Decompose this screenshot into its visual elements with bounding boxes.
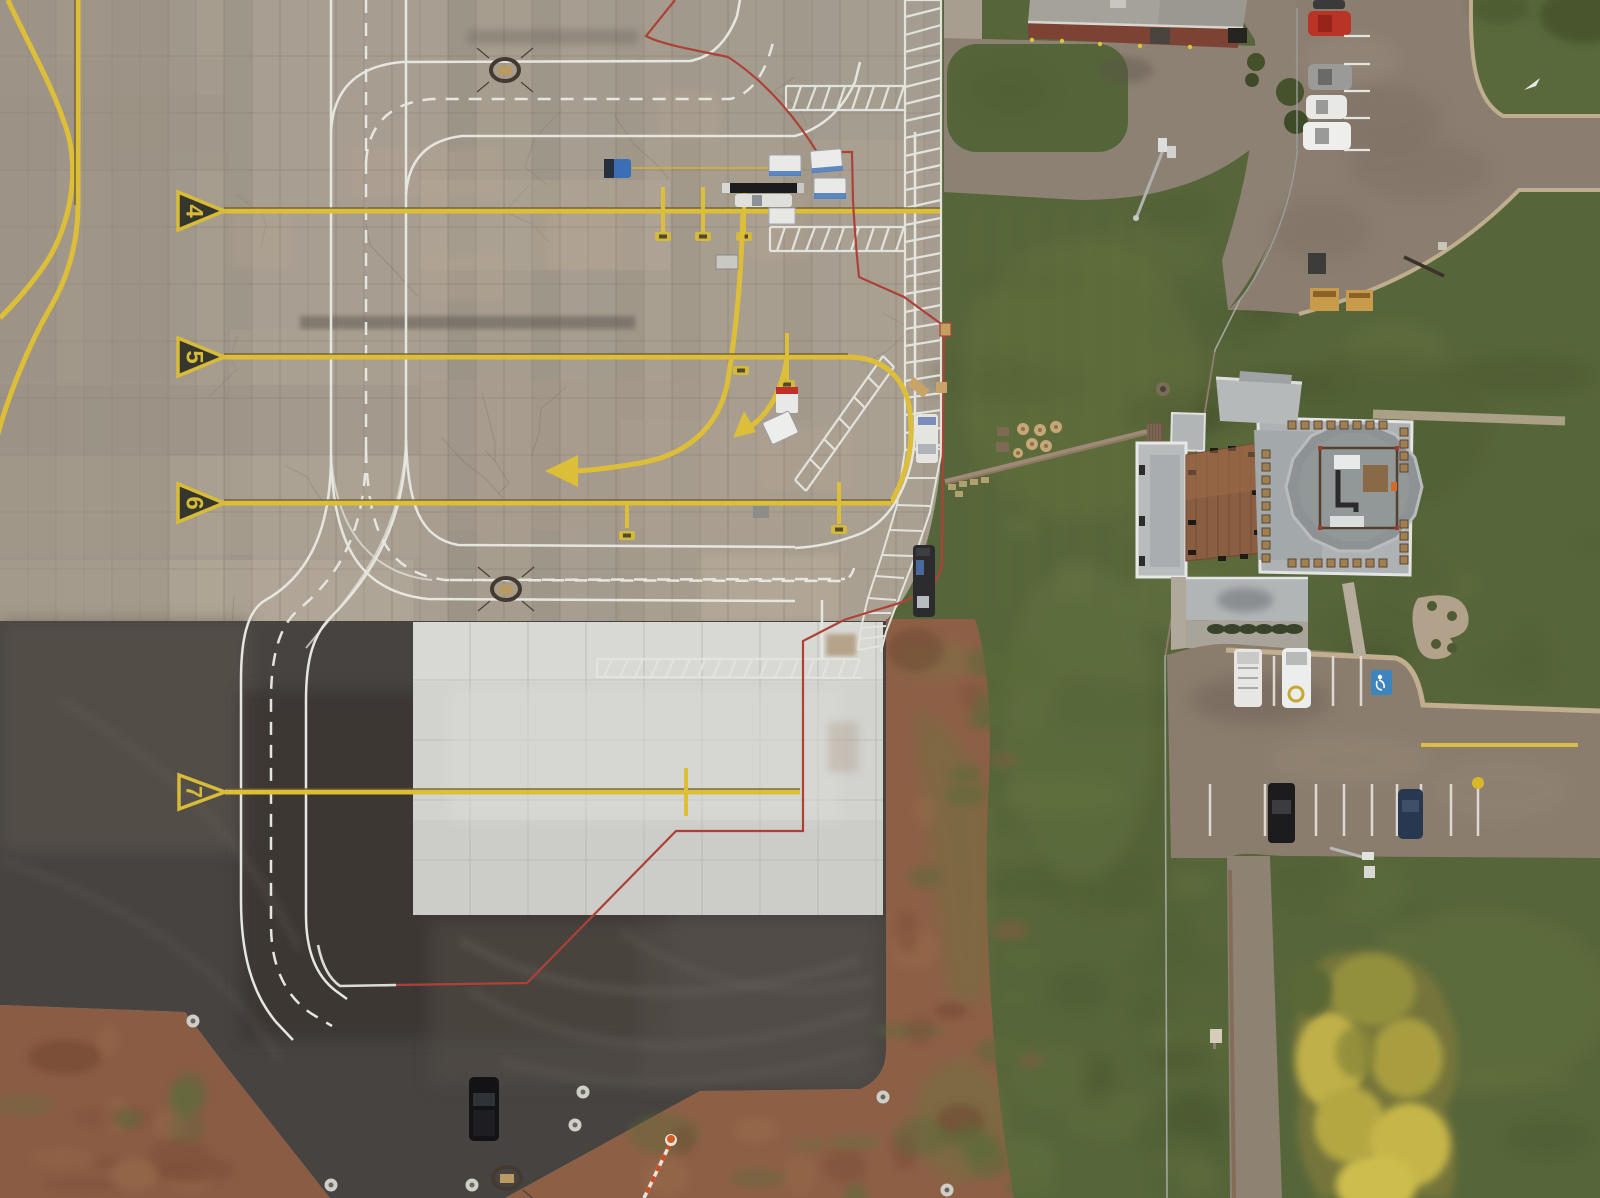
svg-text:5: 5 <box>181 350 208 363</box>
svg-text:7: 7 <box>182 786 207 798</box>
svg-text:6: 6 <box>181 496 208 509</box>
svg-text:4: 4 <box>181 204 208 218</box>
